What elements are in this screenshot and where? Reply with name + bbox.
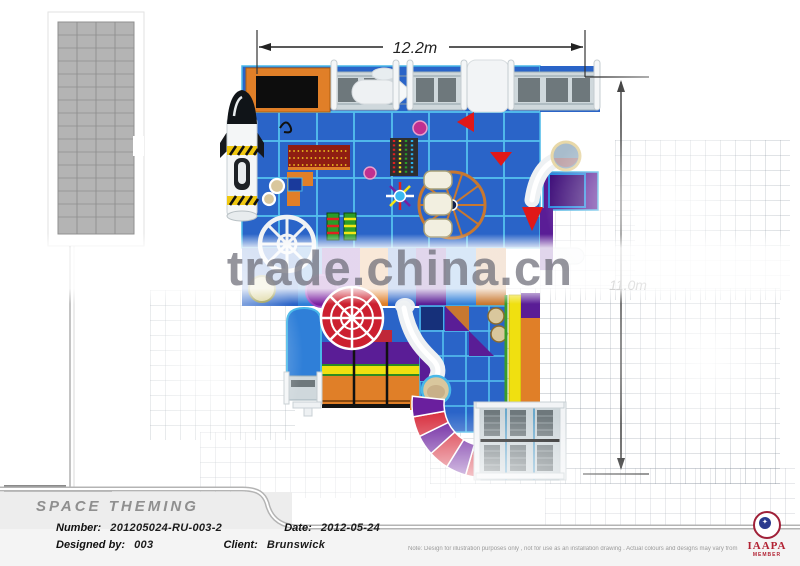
iaapa-emblem-spark-icon: ✦ xyxy=(762,519,768,527)
drawing-title: SPACE THEMING xyxy=(36,498,199,515)
white-spoke-wheel xyxy=(260,217,314,271)
drawing-page: 12.2m 11.0m trade.china.cn SPACE THEMING… xyxy=(0,0,800,566)
client-label: Client: xyxy=(224,539,258,551)
carousel-spiral-wheel xyxy=(321,287,383,349)
ball-pool-deck xyxy=(474,402,566,480)
width-dimension-label: 12.2m xyxy=(393,40,437,57)
dimension-height: 11.0m xyxy=(583,77,649,474)
ferris-wheel xyxy=(419,171,485,238)
number-label: Number: xyxy=(56,522,101,534)
designer-client-row: Designed by: 003 Client: Brunswick xyxy=(56,539,331,551)
disclaimer-text: Note: Design for illustration purposes o… xyxy=(408,546,738,552)
date-label: Date: xyxy=(284,522,312,534)
iaapa-name: IAAPA xyxy=(744,540,790,552)
designed-by-label: Designed by: xyxy=(56,539,125,551)
designed-by-value: 003 xyxy=(134,539,153,551)
tiled-walkway xyxy=(48,12,144,246)
wall-line xyxy=(4,246,112,492)
playground-plan: 12.2m 11.0m xyxy=(0,0,800,566)
date-value: 2012-05-24 xyxy=(321,522,380,534)
client-value: Brunswick xyxy=(267,539,325,551)
iaapa-emblem-icon: ✦ xyxy=(753,511,781,539)
number-value: 201205024-RU-003-2 xyxy=(110,522,222,534)
height-dimension-label: 11.0m xyxy=(609,277,647,293)
number-date-row: Number: 201205024-RU-003-2 Date: 2012-05… xyxy=(56,522,386,534)
trampoline-ball-pit xyxy=(246,68,330,112)
iaapa-member-logo: ✦ IAAPA MEMBER xyxy=(744,511,790,558)
iaapa-member-text: MEMBER xyxy=(744,552,790,558)
spinner-star xyxy=(386,182,414,210)
